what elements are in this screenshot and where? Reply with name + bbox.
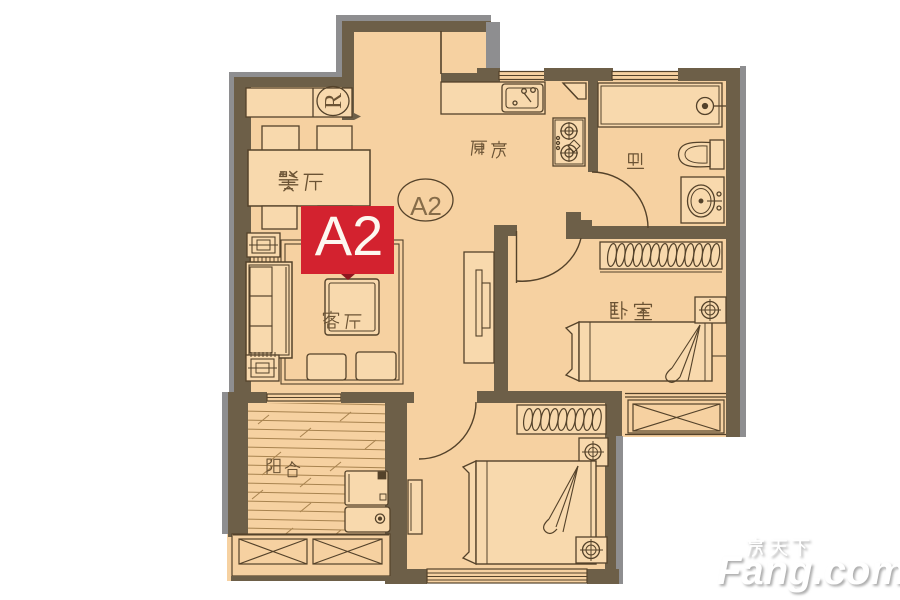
svg-text:R: R — [321, 93, 347, 109]
svg-text:A2: A2 — [410, 191, 442, 221]
svg-text:A2: A2 — [315, 204, 384, 267]
svg-text:Fang.com: Fang.com — [717, 549, 900, 593]
